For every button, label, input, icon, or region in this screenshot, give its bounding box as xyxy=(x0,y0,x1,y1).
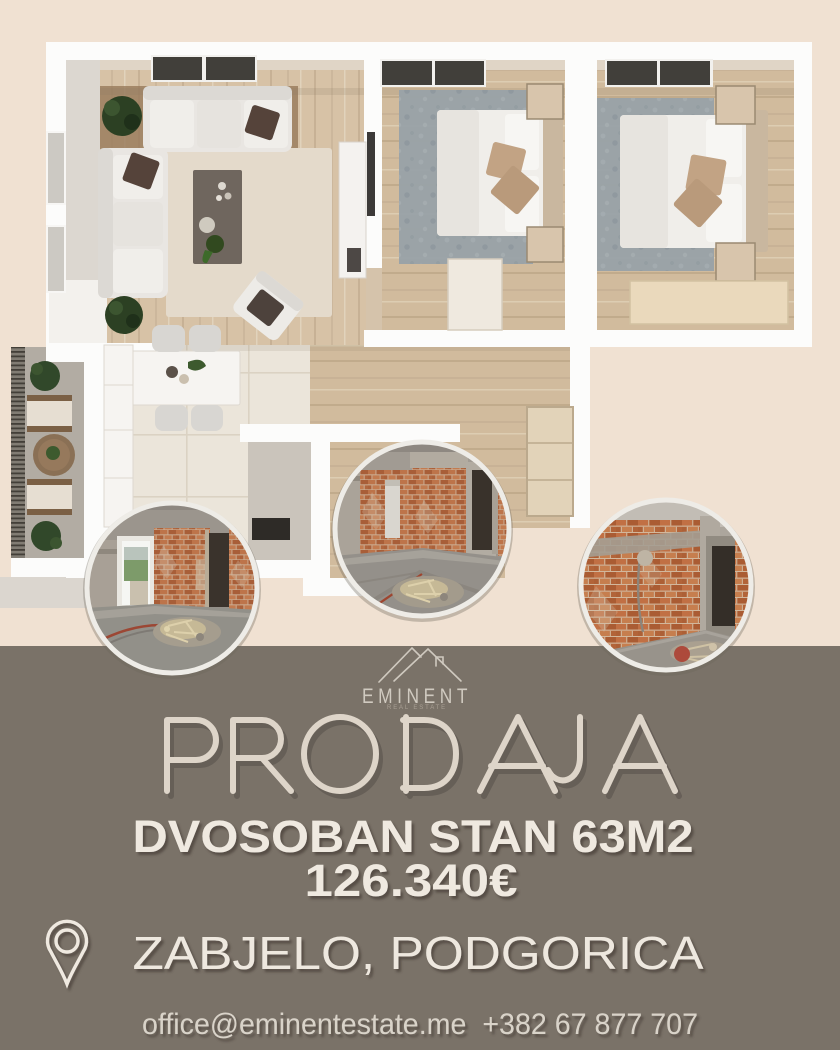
svg-text:REAL ESTATE: REAL ESTATE xyxy=(387,704,447,711)
svg-text:ZABJELO, PODGORICA: ZABJELO, PODGORICA xyxy=(133,927,704,979)
svg-text:126.340€: 126.340€ xyxy=(305,855,518,906)
svg-text:office@eminentestate.me +382: office@eminentestate.me +382 67 877 707 xyxy=(142,1008,698,1041)
